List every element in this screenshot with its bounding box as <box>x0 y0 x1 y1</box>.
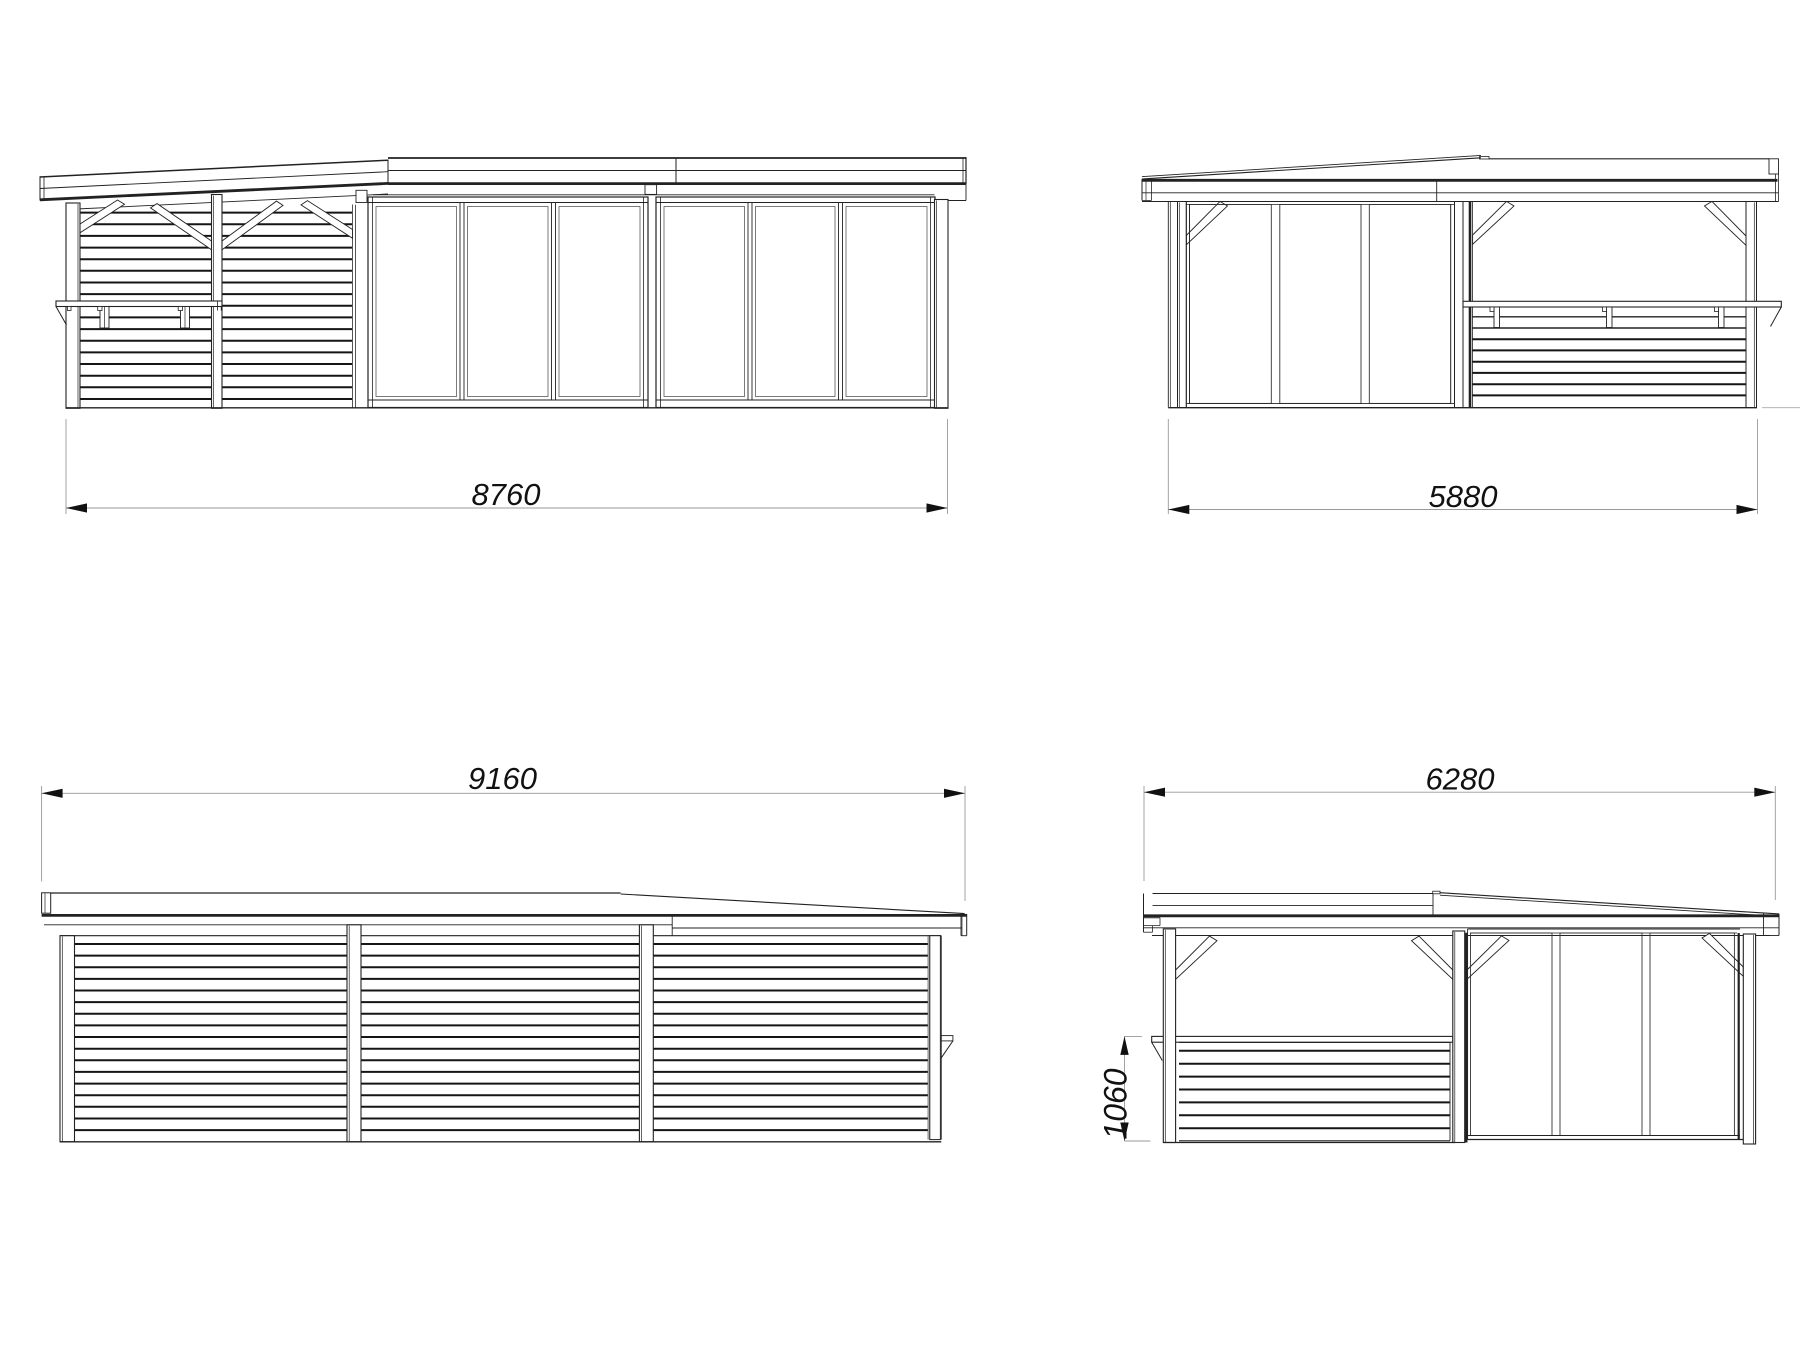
svg-text:9160: 9160 <box>468 761 537 796</box>
svg-text:1060: 1060 <box>1098 1068 1134 1139</box>
svg-text:8760: 8760 <box>472 477 541 512</box>
svg-text:5880: 5880 <box>1429 479 1498 514</box>
svg-text:6280: 6280 <box>1426 762 1495 797</box>
